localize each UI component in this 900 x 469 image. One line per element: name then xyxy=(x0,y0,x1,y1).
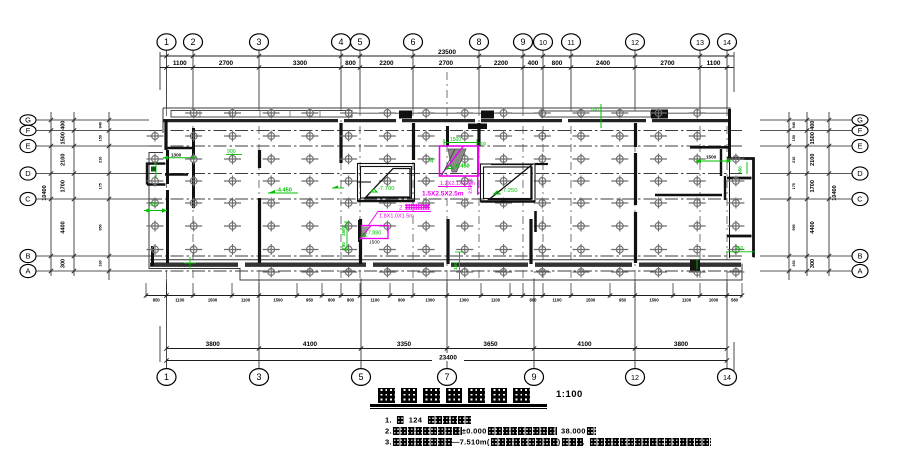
svg-text:580: 580 xyxy=(731,298,739,303)
svg-text:E: E xyxy=(25,142,30,151)
svg-text:175: 175 xyxy=(99,183,103,189)
svg-text:800: 800 xyxy=(552,60,563,67)
svg-text:950: 950 xyxy=(306,298,314,303)
svg-text:1500: 1500 xyxy=(208,298,218,303)
svg-text:1100: 1100 xyxy=(241,298,251,303)
svg-text:1.5X2.5X2.5m: 1.5X2.5X2.5m xyxy=(422,191,464,198)
svg-text:940: 940 xyxy=(792,122,796,128)
svg-text:800: 800 xyxy=(347,298,355,303)
svg-text:2: 2 xyxy=(399,206,403,212)
svg-text:E: E xyxy=(857,142,862,151)
svg-text:950: 950 xyxy=(792,224,796,230)
svg-text:F: F xyxy=(26,126,31,135)
svg-text:4100: 4100 xyxy=(303,341,318,348)
svg-text:14: 14 xyxy=(723,38,731,47)
svg-text:A: A xyxy=(25,267,30,276)
svg-text:12: 12 xyxy=(631,38,639,47)
svg-text:2700: 2700 xyxy=(660,60,675,67)
svg-text:C: C xyxy=(857,195,863,204)
svg-text:10: 10 xyxy=(539,38,547,47)
svg-text:4400: 4400 xyxy=(810,221,816,233)
svg-text:150: 150 xyxy=(99,135,103,141)
svg-text:5: 5 xyxy=(358,372,363,382)
svg-text:-7.250: -7.250 xyxy=(501,188,517,194)
svg-text:500: 500 xyxy=(479,141,487,146)
svg-text:2.5X1.2: 2.5X1.2 xyxy=(468,178,473,194)
svg-text:400: 400 xyxy=(528,60,539,67)
svg-text:23400: 23400 xyxy=(439,355,457,362)
svg-text:1700: 1700 xyxy=(61,180,67,192)
svg-text:4: 4 xyxy=(338,37,343,47)
svg-text:160: 160 xyxy=(792,260,796,266)
svg-text:1100: 1100 xyxy=(491,298,501,303)
svg-text:950: 950 xyxy=(99,224,103,230)
svg-text:1300: 1300 xyxy=(171,153,182,158)
svg-text:23500: 23500 xyxy=(438,49,456,56)
svg-text:3300: 3300 xyxy=(293,60,308,67)
svg-text:150: 150 xyxy=(453,262,458,270)
svg-text:G: G xyxy=(25,116,31,125)
svg-text:1100: 1100 xyxy=(370,298,380,303)
svg-text:2400: 2400 xyxy=(596,60,611,67)
svg-text:B: B xyxy=(25,252,30,261)
svg-text:10400: 10400 xyxy=(832,185,838,201)
svg-text:10400: 10400 xyxy=(42,185,48,201)
svg-text:1500: 1500 xyxy=(273,298,283,303)
svg-text:2200: 2200 xyxy=(379,60,394,67)
svg-text:500: 500 xyxy=(591,107,599,113)
svg-text:2200: 2200 xyxy=(494,60,509,67)
svg-text:-7.880: -7.880 xyxy=(366,231,381,237)
svg-text:160: 160 xyxy=(99,260,103,266)
svg-text:B: B xyxy=(857,252,862,261)
svg-text:950: 950 xyxy=(619,298,627,303)
svg-text:150: 150 xyxy=(792,135,796,141)
svg-text:800: 800 xyxy=(530,298,538,303)
svg-text:1500: 1500 xyxy=(649,298,659,303)
svg-text:1500: 1500 xyxy=(61,132,67,144)
svg-text:7: 7 xyxy=(444,372,449,382)
svg-text:800: 800 xyxy=(149,202,158,208)
svg-text:1100: 1100 xyxy=(682,298,692,303)
svg-text:300: 300 xyxy=(810,259,816,268)
svg-text:1100: 1100 xyxy=(173,60,187,67)
svg-text:1500: 1500 xyxy=(369,240,380,246)
svg-text:3800: 3800 xyxy=(674,341,689,348)
svg-text:1300: 1300 xyxy=(425,298,435,303)
svg-text:1: 1 xyxy=(164,37,169,47)
svg-text:1100: 1100 xyxy=(707,60,721,67)
svg-text:3800: 3800 xyxy=(206,341,221,348)
svg-text:13: 13 xyxy=(696,38,704,47)
svg-text:800: 800 xyxy=(345,60,356,67)
svg-text:1500: 1500 xyxy=(586,298,596,303)
svg-text:2: 2 xyxy=(190,37,195,47)
svg-text:900: 900 xyxy=(398,298,406,303)
svg-text:F: F xyxy=(858,126,863,135)
svg-text:1.8X1.0X1.5m: 1.8X1.0X1.5m xyxy=(379,214,414,220)
svg-text:D: D xyxy=(25,169,31,178)
svg-text:5: 5 xyxy=(357,37,362,47)
svg-text:G: G xyxy=(857,116,863,125)
svg-text:D: D xyxy=(857,169,863,178)
svg-text:A: A xyxy=(857,267,862,276)
svg-text:8: 8 xyxy=(476,37,481,47)
svg-text:450: 450 xyxy=(738,166,743,174)
svg-text:9: 9 xyxy=(520,37,525,47)
svg-text:800: 800 xyxy=(328,298,336,303)
svg-text:1500: 1500 xyxy=(341,225,346,236)
svg-text:14: 14 xyxy=(723,373,731,382)
svg-text:2100: 2100 xyxy=(810,154,816,166)
svg-text:1500: 1500 xyxy=(810,132,816,144)
svg-text:300: 300 xyxy=(61,259,67,268)
svg-text:400: 400 xyxy=(810,121,816,130)
svg-text:1700: 1700 xyxy=(810,180,816,192)
svg-text:25: 25 xyxy=(429,157,434,163)
svg-text:C: C xyxy=(25,195,31,204)
svg-text:3650: 3650 xyxy=(483,341,498,348)
svg-text:12: 12 xyxy=(631,373,639,382)
svg-text:1000: 1000 xyxy=(709,298,719,303)
svg-text:2700: 2700 xyxy=(439,60,454,67)
svg-text:850: 850 xyxy=(153,298,161,303)
svg-text:175: 175 xyxy=(792,183,796,189)
svg-text:750: 750 xyxy=(341,242,346,250)
svg-text:210: 210 xyxy=(99,157,103,163)
svg-text:1500: 1500 xyxy=(706,155,717,160)
svg-text:1100: 1100 xyxy=(552,298,562,303)
svg-text:1: 1 xyxy=(164,372,169,382)
svg-text:1100: 1100 xyxy=(175,298,185,303)
svg-text:-6.450: -6.450 xyxy=(454,164,470,170)
svg-text:-7.700: -7.700 xyxy=(378,186,394,192)
svg-text:2100: 2100 xyxy=(61,154,67,166)
svg-text:400: 400 xyxy=(61,121,67,130)
svg-text:4100: 4100 xyxy=(577,341,592,348)
svg-text:940: 940 xyxy=(99,122,103,128)
svg-text:210: 210 xyxy=(792,157,796,163)
svg-text:3: 3 xyxy=(256,372,261,382)
svg-text:1500: 1500 xyxy=(450,137,461,143)
svg-text:4400: 4400 xyxy=(61,221,67,233)
svg-text:2700: 2700 xyxy=(219,60,234,67)
svg-text:11: 11 xyxy=(567,38,574,47)
svg-text:3350: 3350 xyxy=(397,341,412,348)
svg-text:1300: 1300 xyxy=(459,298,469,303)
svg-text:6: 6 xyxy=(410,37,415,47)
svg-text:3: 3 xyxy=(256,37,261,47)
svg-text:9: 9 xyxy=(531,372,536,382)
svg-text:450: 450 xyxy=(735,246,744,252)
